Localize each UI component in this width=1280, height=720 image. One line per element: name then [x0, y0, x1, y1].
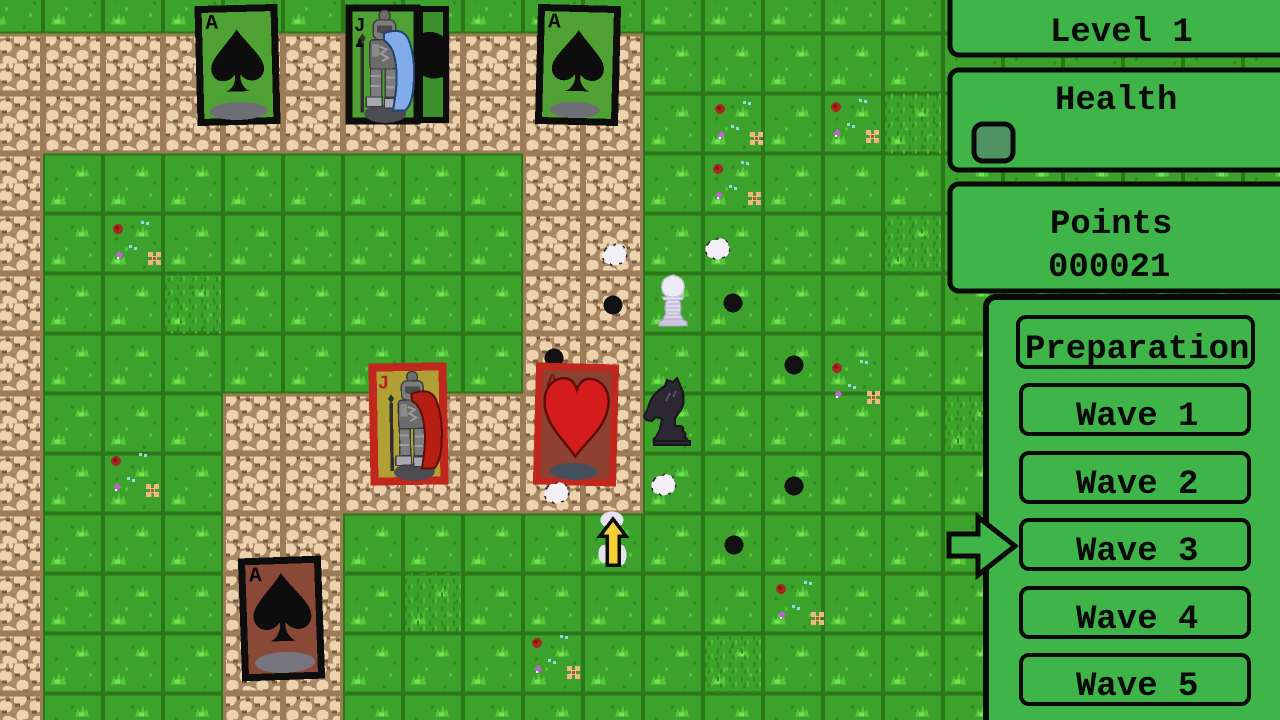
svg-text:♟: ♟: [355, 35, 364, 52]
svg-text:Wave 2: Wave 2: [1076, 466, 1198, 504]
svg-text:A: A: [205, 12, 219, 35]
svg-text:Wave 4: Wave 4: [1076, 601, 1198, 639]
svg-text:Points: Points: [1050, 206, 1172, 244]
svg-text:A: A: [249, 565, 263, 588]
svg-text:Preparation: Preparation: [1025, 331, 1249, 369]
svg-text:Level 1: Level 1: [1050, 14, 1193, 52]
svg-text:000021: 000021: [1048, 249, 1170, 287]
svg-text:Wave 3: Wave 3: [1076, 533, 1198, 571]
svg-text:J: J: [378, 372, 390, 394]
svg-text:J: J: [354, 15, 365, 37]
svg-text:Wave 5: Wave 5: [1076, 668, 1198, 706]
svg-text:Health: Health: [1055, 82, 1177, 120]
svg-text:Wave 1: Wave 1: [1076, 398, 1198, 436]
svg-text:A: A: [548, 11, 562, 34]
